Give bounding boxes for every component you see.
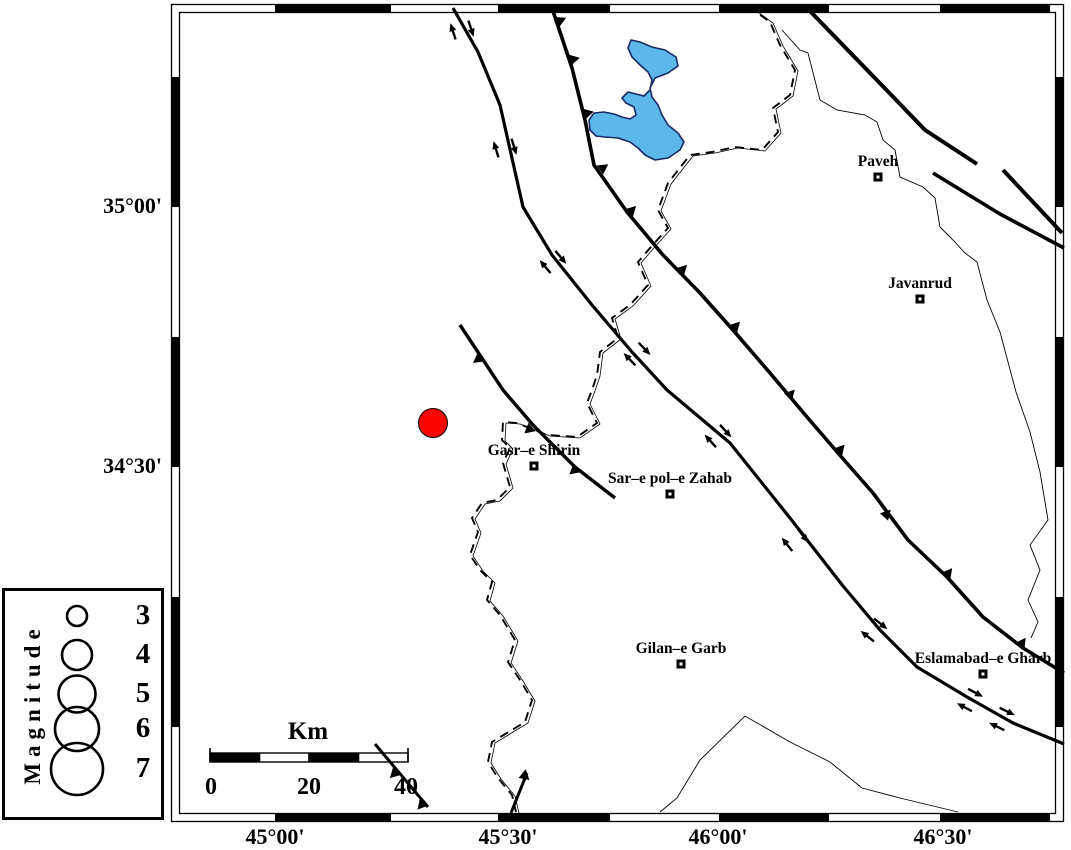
- frame-tick-bottom: [498, 814, 610, 822]
- lon-label-45-30: 45°30': [438, 824, 578, 850]
- slip-arrow: [621, 351, 638, 368]
- legend-label-m4: 4: [123, 638, 163, 671]
- slip-arrow: [702, 432, 719, 449]
- slip-arrow-head: [955, 700, 965, 710]
- city-label: Gasr–e Shirin: [488, 442, 581, 459]
- city-marker-center: [877, 176, 880, 179]
- legend-circle-m4: [62, 640, 92, 670]
- city-label: Gilan–e Garb: [636, 640, 727, 657]
- scalebar-km-label: Km: [288, 718, 328, 745]
- epicenter-circle: [419, 409, 448, 438]
- city-marker-center: [533, 465, 536, 468]
- legend-label-m3: 3: [123, 599, 163, 632]
- scalebar-label-40: 40: [394, 774, 418, 800]
- magnitude-legend: Magnitude 3 4 5 6 7: [2, 588, 164, 820]
- city-label: Paveh: [858, 153, 899, 170]
- fault-main-recent-fault: [453, 8, 1064, 744]
- thrust-tooth: [413, 798, 428, 813]
- lon-label-46-30: 46°30': [873, 824, 1013, 850]
- slip-arrow: [636, 340, 653, 357]
- fault-northeast-fault-2: [1003, 170, 1062, 233]
- river-south: [660, 716, 958, 812]
- legend-label-m5: 5: [123, 677, 163, 710]
- scalebar-segment: [210, 753, 260, 762]
- city-marker-center: [982, 673, 985, 676]
- thrust-tooth: [1015, 635, 1030, 649]
- thrust-tooth: [470, 353, 485, 368]
- slip-arrow-head: [490, 140, 499, 150]
- scalebar-segment: [309, 753, 359, 762]
- slip-arrow: [955, 700, 973, 714]
- lon-label-45-00: 45°00': [205, 824, 345, 850]
- slip-arrow: [717, 422, 734, 439]
- scalebar-label-20: 20: [297, 774, 321, 800]
- slip-arrow: [447, 22, 459, 40]
- thrust-tooth: [676, 261, 691, 276]
- city-marker-center: [680, 663, 683, 666]
- city-marker-center: [669, 493, 672, 496]
- slip-arrow-head: [1006, 709, 1016, 719]
- slip-arrow-head: [974, 690, 984, 700]
- thrust-tooth: [566, 464, 581, 479]
- legend-circle-m3: [67, 606, 87, 626]
- city-label: Javanrud: [888, 275, 952, 292]
- fault-mountain-front-fault: [552, 8, 1064, 673]
- slip-arrow: [858, 628, 876, 644]
- city-label: Sar–e pol–e Zahab: [608, 470, 732, 487]
- legend-label-m6: 6: [123, 712, 163, 745]
- frame-tick-left: [172, 597, 180, 727]
- lake: [589, 40, 684, 160]
- fault-northeast-fault-3: [933, 173, 1064, 248]
- legend-label-m7: 7: [123, 752, 163, 785]
- frame-tick-top: [275, 5, 391, 13]
- slip-arrow: [537, 258, 553, 276]
- fault-northeast-fault-1: [807, 8, 977, 164]
- slip-arrow-head: [988, 720, 998, 730]
- frame-tick-left: [172, 337, 180, 467]
- thrust-tooth: [942, 565, 957, 580]
- frame-tick-bottom: [940, 814, 1050, 822]
- lon-label-46-00: 46°00': [648, 824, 788, 850]
- frame-tick-right: [1056, 337, 1064, 467]
- thrust-tooth: [519, 768, 532, 780]
- frame-tick-bottom: [719, 814, 829, 822]
- frame-tick-left: [172, 77, 180, 207]
- slip-arrow: [988, 720, 1006, 734]
- scalebar-label-0: 0: [205, 774, 217, 800]
- frame-tick-right: [1056, 597, 1064, 727]
- slip-arrow-head: [447, 22, 456, 32]
- city-marker-center: [919, 298, 922, 301]
- lat-label-34-30: 34°30': [30, 453, 162, 479]
- slip-arrow: [779, 536, 795, 554]
- slip-arrow: [490, 140, 502, 158]
- thrust-tooth: [784, 386, 799, 401]
- frame-tick-top: [940, 5, 1050, 13]
- frame-tick-right: [1056, 77, 1064, 207]
- city-label: Eslamabad–e Gharb: [915, 650, 1052, 667]
- lat-label-35-00: 35°00': [30, 193, 162, 219]
- frame-tick-bottom: [275, 814, 391, 822]
- map-page: Km02040PavehJavanrudGasr–e ShirinSar–e p…: [0, 0, 1071, 850]
